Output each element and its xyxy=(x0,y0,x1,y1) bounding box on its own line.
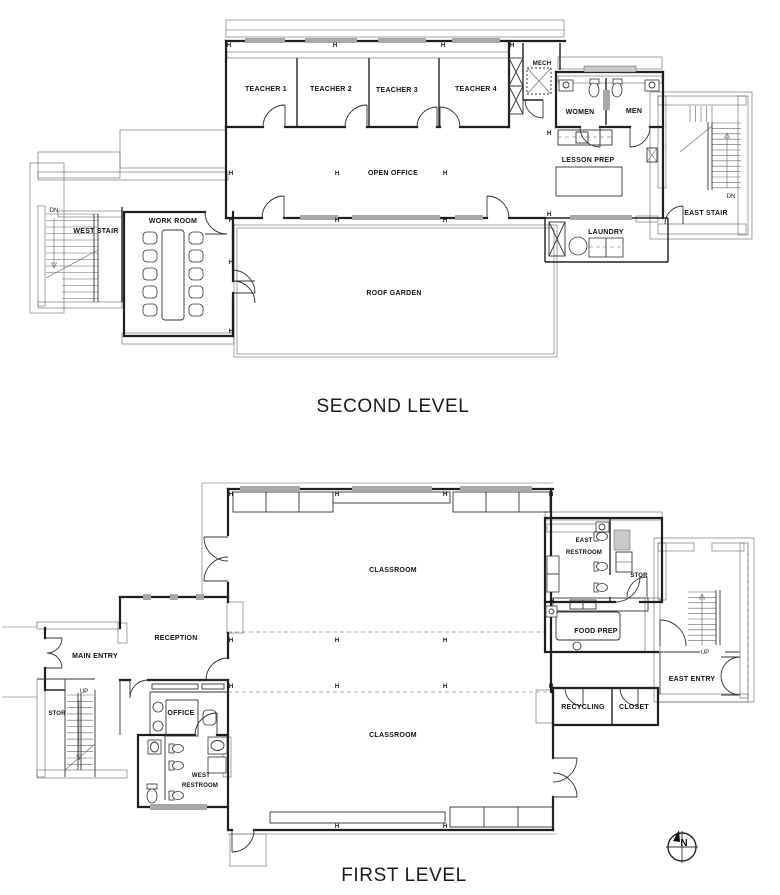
h-marker-icon: H xyxy=(229,329,233,335)
h-marker-icon: H xyxy=(549,492,553,498)
h-marker-icon: H xyxy=(443,171,447,177)
floor-plan-page: H H H H H H H H H H H H H H DN DN TEACHE… xyxy=(0,0,780,895)
h-marker-icon: H xyxy=(335,218,339,224)
fixtures-west-restroom xyxy=(147,737,227,803)
h-marker-icon: H xyxy=(335,171,339,177)
h-marker-icon: H xyxy=(443,684,447,690)
h-marker-icon: H xyxy=(547,131,551,137)
room-label-work-room: WORK ROOM xyxy=(149,218,197,225)
h-marker-icon: H xyxy=(229,260,233,266)
h-marker-icon: H xyxy=(443,492,447,498)
second-level-title: SECOND LEVEL xyxy=(317,396,470,417)
roof-outlines-1st xyxy=(2,483,754,866)
h-marker-icon: H xyxy=(550,599,554,605)
floor-plan-drawing: H H H H H H H H H H H H H H DN DN TEACHE… xyxy=(0,0,780,895)
room-label-west-restroom-1: WEST xyxy=(192,773,210,779)
work-room-chairs xyxy=(143,232,203,316)
h-marker-icon: H xyxy=(229,218,233,224)
room-label-teacher-2: TEACHER 2 xyxy=(310,86,352,93)
h-marker-icon: H xyxy=(510,43,514,49)
room-label-teacher-3: TEACHER 3 xyxy=(376,87,418,94)
down-label: DN xyxy=(50,208,59,214)
room-label-east-entry: EAST ENTRY xyxy=(669,676,716,683)
room-label-west-stair: WEST STAIR xyxy=(73,228,118,235)
walls-1st xyxy=(37,486,740,830)
room-label-teacher-4: TEACHER 4 xyxy=(455,86,497,93)
room-label-east-stair: EAST STAIR xyxy=(684,210,728,217)
room-label-men: MEN xyxy=(626,108,642,115)
office-furniture xyxy=(153,700,216,736)
room-label-classroom-south: CLASSROOM xyxy=(369,732,417,739)
room-label-office: OFFICE xyxy=(167,710,194,717)
north-arrow-icon: N xyxy=(666,830,698,863)
h-marker-icon: H xyxy=(229,638,233,644)
room-label-recycling: RECYCLING xyxy=(561,704,605,711)
h-marker-icon: H xyxy=(335,492,339,498)
h-marker-icon: H xyxy=(443,638,447,644)
room-label-mech: MECH xyxy=(533,61,551,67)
h-marker-icon: H xyxy=(227,43,231,49)
room-label-east-restroom-2: RESTROOM xyxy=(566,550,602,556)
h-marker-icon: H xyxy=(333,43,337,49)
room-label-classroom-north: CLASSROOM xyxy=(369,567,417,574)
up-label: UP xyxy=(80,689,88,695)
h-marker-icon: H xyxy=(229,171,233,177)
h-marker-icon: H xyxy=(547,212,551,218)
room-label-teacher-1: TEACHER 1 xyxy=(245,86,287,93)
room-label-reception: RECEPTION xyxy=(154,635,197,642)
h-marker-icon: H xyxy=(335,824,339,830)
roof-outlines xyxy=(30,20,752,357)
room-label-main-entry: MAIN ENTRY xyxy=(72,653,118,660)
north-label: N xyxy=(680,838,687,849)
room-label-food-prep: FOOD PREP xyxy=(574,628,618,635)
room-label-stor-east: STOR xyxy=(630,573,648,579)
room-label-closet: CLOSET xyxy=(619,704,649,711)
h-marker-icon: H xyxy=(443,218,447,224)
up-label: UP xyxy=(701,650,709,656)
room-label-open-office: OPEN OFFICE xyxy=(368,170,418,177)
h-marker-icon: H xyxy=(229,684,233,690)
room-label-east-restroom-1: EAST xyxy=(576,538,593,544)
h-marker-icon: H xyxy=(443,824,447,830)
room-label-lesson-prep: LESSON PREP xyxy=(562,157,615,164)
first-level-title: FIRST LEVEL xyxy=(341,865,467,886)
room-label-stor-west: STOR xyxy=(48,711,66,717)
fixtures-east-restroom xyxy=(547,522,609,592)
room-label-west-restroom-2: RESTROOM xyxy=(182,783,218,789)
second-level-plan: H H H H H H H H H H H H H H DN DN TEACHE… xyxy=(30,20,752,417)
room-label-roof-garden: ROOF GARDEN xyxy=(366,290,421,297)
room-label-laundry: LAUNDRY xyxy=(588,229,624,236)
down-label: DN xyxy=(727,194,736,200)
first-level-plan: H H H H H H H H H H H H H H UP UP CLASSR… xyxy=(2,483,754,886)
h-marker-icon: H xyxy=(549,684,553,690)
door-arcs-1st xyxy=(45,537,740,852)
room-label-women: WOMEN xyxy=(566,109,595,116)
h-marker-icon: H xyxy=(335,638,339,644)
h-marker-icon: H xyxy=(335,684,339,690)
h-marker-icon: H xyxy=(441,43,445,49)
h-marker-icon: H xyxy=(229,492,233,498)
